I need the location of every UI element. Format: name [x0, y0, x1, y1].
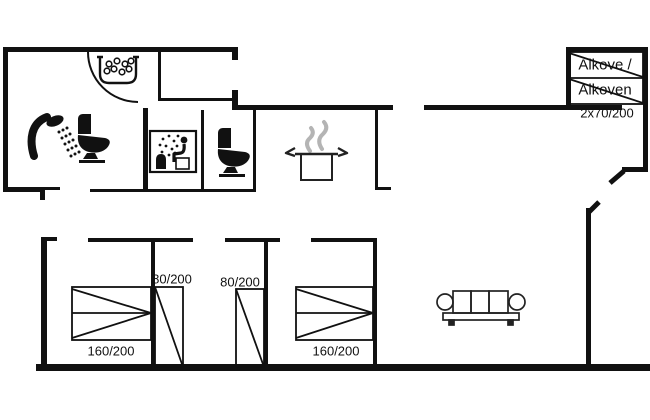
single-bed-left: [155, 287, 183, 367]
bed-size-label-single-left: 80/200: [152, 273, 192, 286]
alcove-size-label: 2x70/200: [580, 107, 634, 120]
walls: [3, 47, 650, 371]
double-bed-right: [296, 287, 373, 340]
cooking-pot-icon: [286, 122, 347, 180]
floorplan: Alkove / Alkoven 2x70/200 80/200 80/200 …: [0, 0, 650, 420]
sauna-icon: [150, 131, 196, 172]
bed-size-label-double-right: 160/200: [313, 345, 360, 358]
toilet-icon: [218, 128, 250, 177]
bed-size-label-double-left: 160/200: [88, 345, 135, 358]
sofa-icon: [437, 291, 525, 325]
toilet-icon: [78, 114, 110, 163]
double-bed-left: [72, 287, 151, 340]
shower-icon: [32, 113, 81, 158]
whirlpool-icon: [97, 57, 139, 83]
single-bed-middle: [236, 289, 264, 367]
alcove-label-line2: Alkoven: [578, 83, 631, 98]
alcove-label-line1: Alkove /: [578, 58, 631, 73]
bed-size-label-single-middle: 80/200: [220, 276, 260, 289]
